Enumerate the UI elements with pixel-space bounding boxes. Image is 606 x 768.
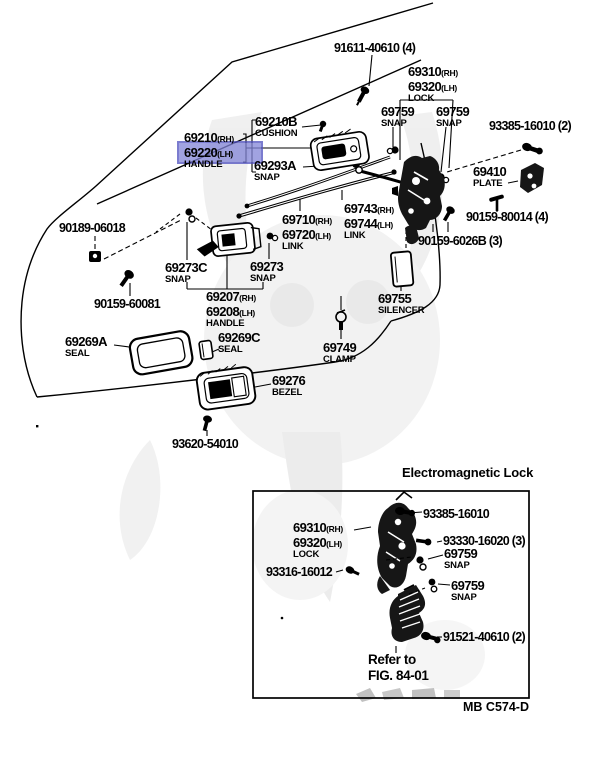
inset-label-69759-snap-b: 69759 SNAP — [451, 578, 484, 603]
part-label-69749-clamp: 69749 CLAMP — [323, 340, 356, 365]
screw-93385-icon — [521, 142, 544, 156]
part-label-90159-80014: 90159-80014 (4) — [466, 209, 548, 225]
screw-93620-icon — [200, 415, 213, 432]
bezel-69276-drawing — [195, 362, 256, 410]
part-label-69269c-seal: 69269C SEAL — [218, 330, 260, 355]
part-label-69755-silencer: 69755 SILENCER — [378, 291, 424, 316]
seal-69269a-drawing — [128, 330, 193, 376]
part-label-69276-bezel: 69276 BEZEL — [272, 373, 305, 398]
part-label-90159-6026b: 90159-6026B (3) — [418, 233, 502, 249]
part-label-69743-69744-link: 69743(RH) 69744(LH) LINK — [344, 201, 394, 241]
stray-dot — [281, 617, 284, 620]
screw-90159-6026b-icon — [441, 205, 457, 223]
refer-note: Refer to FIG. 84-01 — [368, 652, 429, 683]
part-label-69410-plate: 69410 PLATE — [473, 164, 506, 189]
inside-handle-drawing — [195, 222, 262, 259]
cushion-clip-icon — [319, 121, 326, 132]
parts-diagram-page: 91611-40610 (4) 69310(RH) 69320(LH) LOCK… — [0, 0, 606, 768]
inset-label-69759-snap-a: 69759 SNAP — [444, 546, 477, 571]
part-label-69210-69220-handle: 69210(RH) 69220(LH) HANDLE — [184, 130, 234, 170]
part-label-69759-snap-b: 69759 SNAP — [436, 104, 469, 129]
inset-lock-drawing — [377, 492, 416, 594]
inset-title: Electromagnetic Lock — [402, 466, 533, 479]
part-label-91611-40610: 91611-40610 (4) — [334, 40, 415, 56]
inset-label-91521-40610: 91521-40610 (2) — [443, 629, 525, 645]
part-label-90189-06018: 90189-06018 — [59, 220, 125, 236]
screw-93330-icon — [416, 537, 432, 546]
inset-label-69310-69320-lock: 69310(RH) 69320(LH) LOCK — [293, 520, 343, 560]
part-label-69207-69208-handle: 69207(RH) 69208(LH) HANDLE — [206, 289, 256, 329]
screw-90159-60081-icon — [117, 268, 136, 288]
snap-inset-69759-b-icon — [429, 579, 437, 592]
plate-69410-drawing — [520, 163, 544, 193]
snap-69273c-icon — [185, 208, 195, 222]
seal-69269c-drawing — [199, 340, 213, 359]
part-label-69269a-seal: 69269A SEAL — [65, 334, 107, 359]
part-label-69759-snap-a: 69759 SNAP — [381, 104, 414, 129]
part-label-69310-69320-lock: 69310(RH) 69320(LH) LOCK — [408, 64, 458, 104]
nut-90189-icon — [89, 251, 101, 262]
snap-inset-69759-a-icon — [416, 556, 426, 570]
part-label-90159-60081: 90159-60081 — [94, 296, 160, 312]
part-label-69210b-cushion: 69210B CUSHION — [255, 114, 297, 139]
part-label-69710-69720-link: 69710(RH) 69720(LH) LINK — [282, 212, 332, 252]
silencer-drawing — [391, 251, 414, 287]
stray-dot-2 — [36, 425, 38, 427]
inset-label-93316-16012: 93316-16012 — [266, 564, 332, 580]
part-label-69273-snap: 69273 SNAP — [250, 259, 283, 284]
figure-code: MB C574-D — [463, 701, 529, 714]
snap-69759-a-icon — [387, 146, 398, 153]
screw-93316-icon — [344, 565, 360, 577]
part-label-69273c-snap: 69273C SNAP — [165, 260, 207, 285]
inset-label-93385-16010: 93385-16010 — [423, 506, 489, 522]
part-label-69293a-snap: 69293A SNAP — [254, 158, 296, 183]
inset-actuator-drawing — [389, 585, 425, 642]
part-label-93620-54010: 93620-54010 — [172, 436, 238, 452]
outside-handle-drawing — [309, 127, 370, 171]
part-label-93385-16010-2: 93385-16010 (2) — [489, 118, 571, 134]
